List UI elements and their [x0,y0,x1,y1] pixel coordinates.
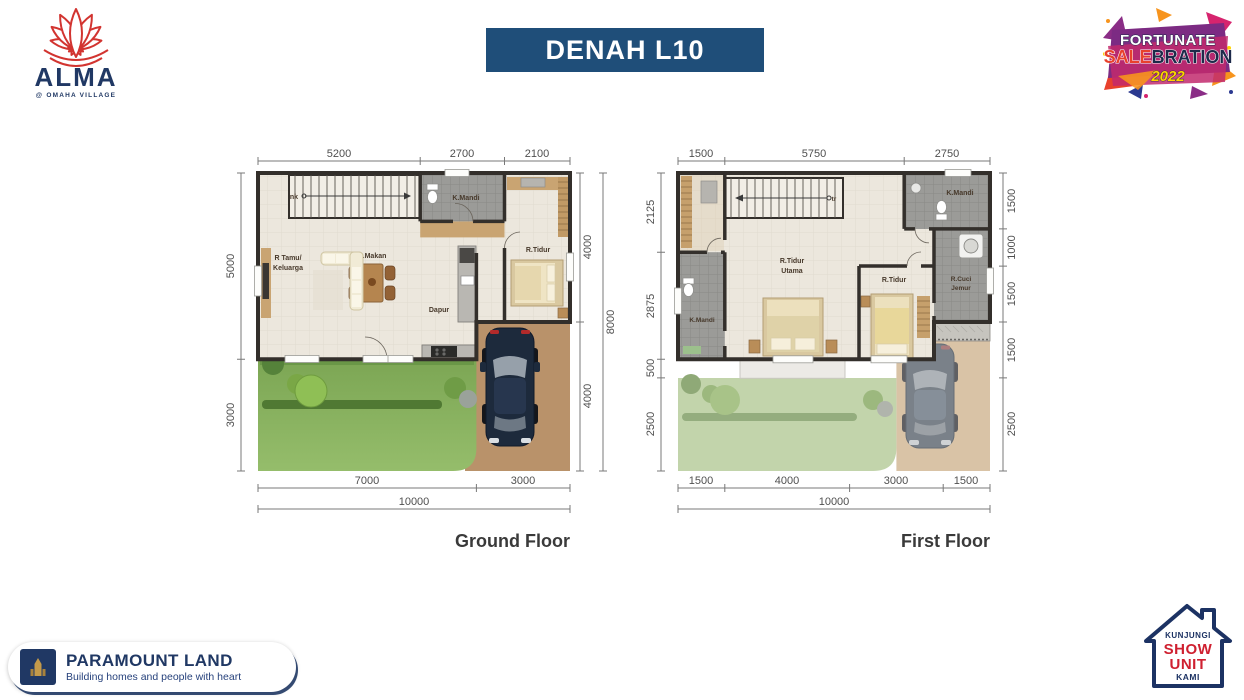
first-bathroom-left: K.Mandi [678,252,725,359]
ground-stairs: nk [289,175,420,218]
dim-label: 2750 [935,148,959,160]
dim-label: 1000 [1006,235,1018,259]
slide-title: DENAH L10 [545,35,704,66]
dim-label: 4000 [775,475,799,487]
first-bathroom-left-label: K.Mandi [689,317,714,324]
ground-bedroom-label: R.Tidur [526,247,551,254]
ground-floor-plan: nk K.Mandi R.Tidur [225,148,635,560]
dim-label: 2700 [450,148,474,160]
first-floor-plan: tr K.Mandi R.Cuci Jemur [645,148,1055,560]
dim-label: 500 [645,359,657,377]
first-laundry-label-2: Jemur [951,285,971,292]
dim-label: 10000 [819,496,850,508]
first-master-label-1: R.Tidur [780,258,805,265]
visit-line4: KAMI [1176,672,1200,682]
dim-label: 3000 [884,475,908,487]
dim-label: 1500 [689,475,713,487]
dim-label: 4000 [582,235,594,259]
paramount-logo-box [20,649,56,685]
first-bedroom-label: R.Tidur [882,277,907,284]
dim-label: 5200 [327,148,351,160]
first-stairs-label: tr [832,196,837,203]
first-house: tr K.Mandi R.Cuci Jemur [675,170,994,363]
dim-label: 2500 [1006,412,1018,436]
first-floor-block: tr K.Mandi R.Cuci Jemur [645,148,1055,565]
dim-label: 5000 [225,254,237,278]
first-master-label-2: Utama [781,268,803,275]
dim-label: 5750 [802,148,826,160]
first-laundry-label-1: R.Cuci [951,276,972,283]
show-unit-badge: KUNJUNGI SHOW UNIT KAMI [1142,596,1242,696]
salebration-2022-badge: FORTUNATE SALEBRATION 2022 [1098,6,1238,102]
slide-title-banner: DENAH L10 [486,28,764,72]
lotus-flower-icon [44,9,108,66]
dim-label: 1500 [1006,282,1018,306]
dim-label: 3000 [225,403,237,427]
first-bathroom-top-label: K.Mandi [946,190,973,197]
alma-subtitle-text: @ OMAHA VILLAGE [36,92,116,99]
dim-label: 1500 [1006,189,1018,213]
first-laundry: R.Cuci Jemur [934,229,990,322]
alma-brand-text: ALMA [34,62,117,92]
visit-line3: UNIT [1170,656,1207,673]
ground-living-label-1: R Tamu/ [274,255,301,262]
dim-label: 1500 [954,475,978,487]
dim-label: 7000 [355,475,379,487]
footer-texts: PARAMOUNT LAND Building homes and people… [66,651,241,683]
dim-label: 2125 [645,200,657,224]
badge-sale-text: SALE [1104,47,1152,67]
first-floor-name: First Floor [901,531,990,551]
building-icon [27,656,49,678]
ground-bathroom-label: K.Mandi [452,195,479,202]
ground-living-label-2: Keluarga [273,265,303,272]
badge-salebration-text: SALEBRATION [1104,47,1233,67]
footer-brand: PARAMOUNT LAND [66,651,241,671]
dim-label: 3000 [511,475,535,487]
ground-floor-name: Ground Floor [455,531,570,551]
visit-line1: KUNJUNGI [1165,631,1211,640]
slide: ALMA @ OMAHA VILLAGE DENAH L10 FORTUNATE… [0,0,1244,700]
ground-stairs-label: nk [290,194,298,201]
first-topleft-room [680,175,724,251]
dim-label: 1500 [689,148,713,160]
dim-label: 8000 [605,310,617,334]
badge-bration-text: BRATION [1152,47,1233,67]
ground-bathroom: K.Mandi [420,175,504,221]
footer-tagline: Building homes and people with heart [66,671,241,683]
dim-label: 2500 [645,412,657,436]
dim-label: 2875 [645,294,657,318]
badge-year-text: 2022 [1150,68,1185,85]
paramount-land-footer: PARAMOUNT LAND Building homes and people… [8,642,296,692]
ground-kitchen-label: Dapur [429,307,450,314]
dim-label: 10000 [399,496,430,508]
ground-floor-block: nk K.Mandi R.Tidur [225,148,635,565]
dim-label: 4000 [582,384,594,408]
car [480,328,540,446]
first-bathroom-top: K.Mandi [904,175,990,229]
dim-label: 2100 [525,148,549,160]
first-stairs: tr [725,178,843,218]
dim-label: 1500 [1006,338,1018,362]
alma-logo: ALMA @ OMAHA VILLAGE [12,4,142,106]
